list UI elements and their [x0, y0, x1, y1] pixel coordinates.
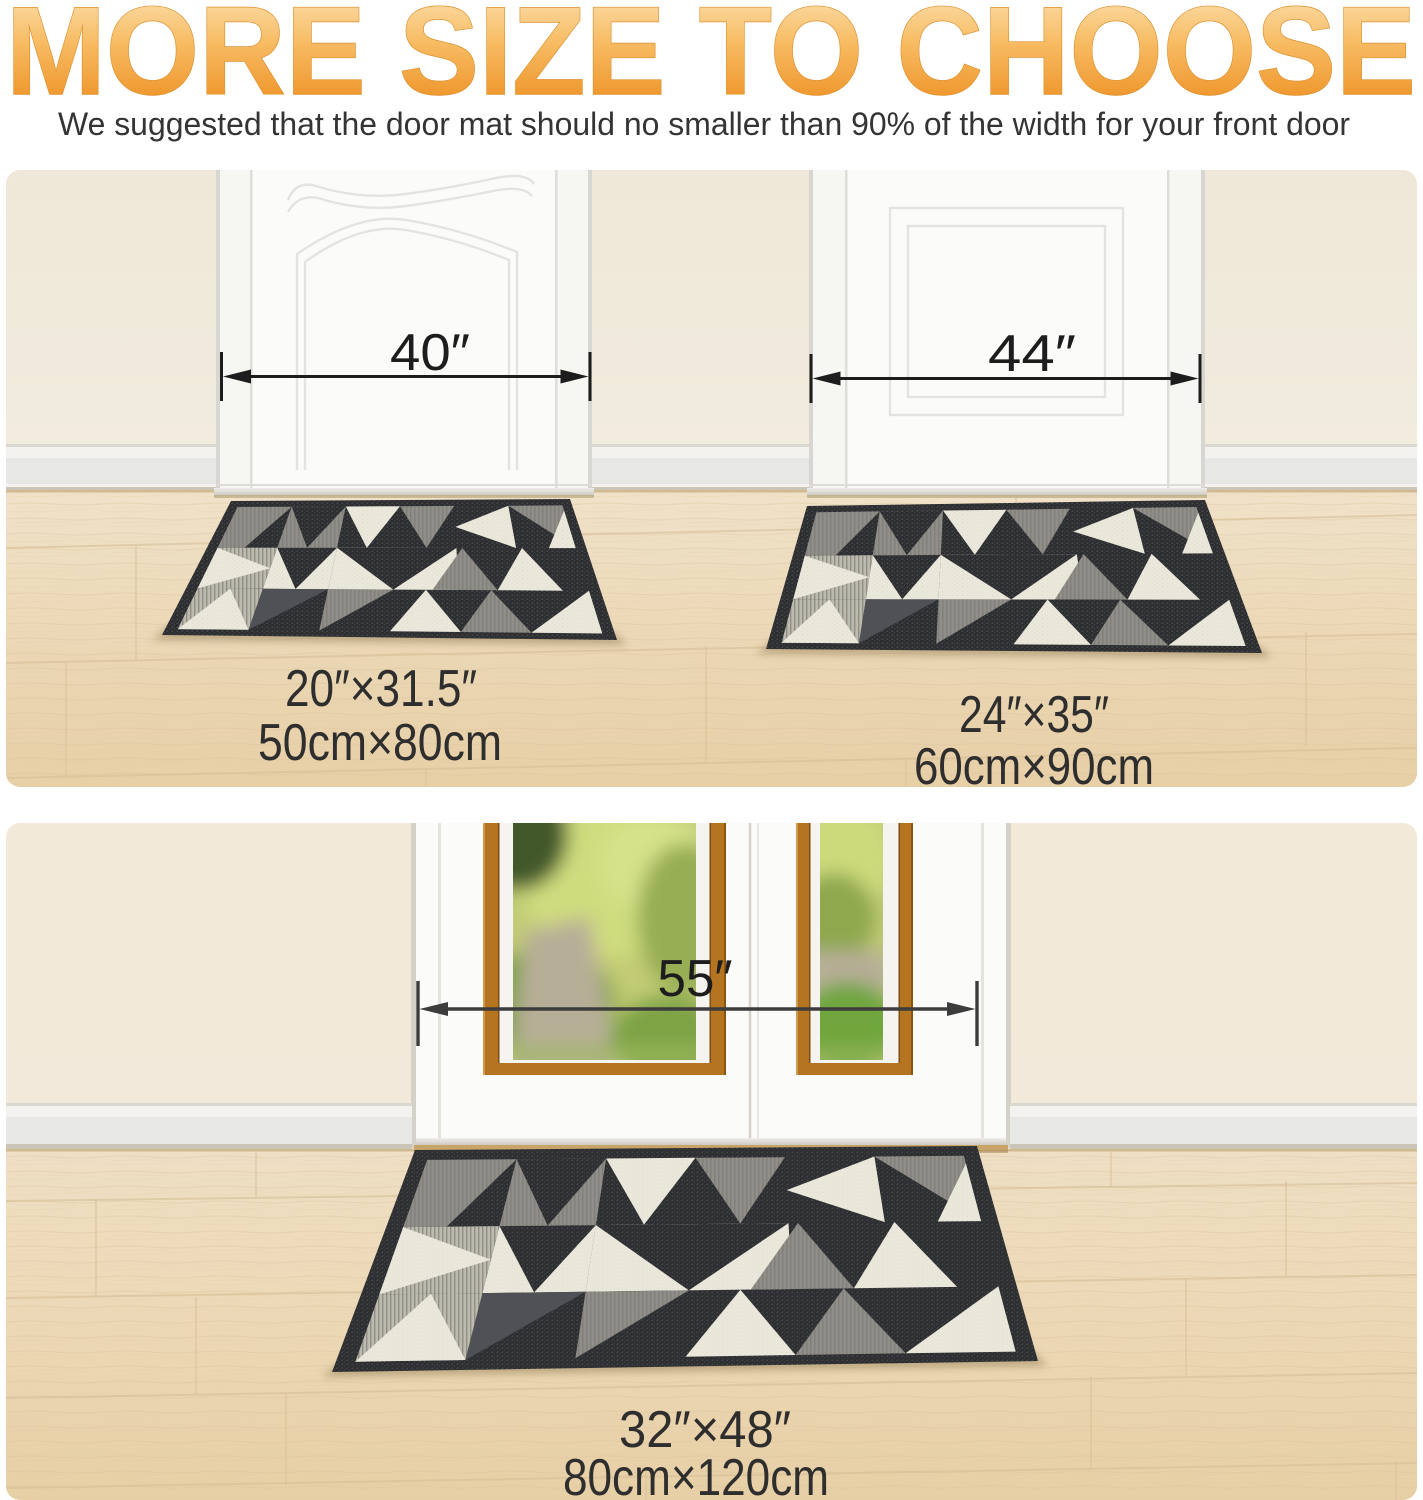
svg-text:40″: 40″	[390, 324, 470, 382]
svg-text:60cm×90cm: 60cm×90cm	[914, 738, 1154, 787]
svg-text:44″: 44″	[988, 325, 1076, 383]
svg-text:MORE SIZE TO CHOOSE: MORE SIZE TO CHOOSE	[6, 0, 1416, 121]
svg-text:24″×35″: 24″×35″	[959, 686, 1109, 744]
svg-text:80cm×120cm: 80cm×120cm	[563, 1449, 829, 1500]
svg-text:55″: 55″	[658, 950, 733, 1008]
svg-text:We suggested that the door mat: We suggested that the door mat should no…	[58, 106, 1350, 142]
svg-text:50cm×80cm: 50cm×80cm	[258, 714, 502, 772]
svg-text:20″×31.5″: 20″×31.5″	[285, 660, 477, 718]
